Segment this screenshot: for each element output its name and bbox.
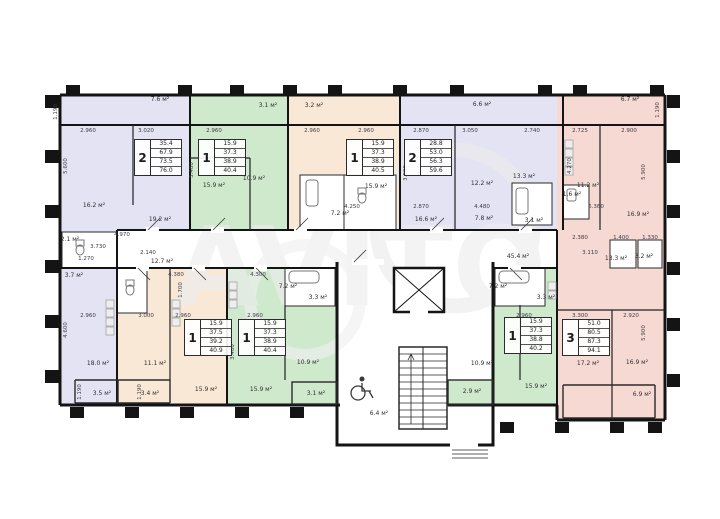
- dimension-label: 2.140: [140, 250, 156, 256]
- area-label: 3.1 м²: [307, 391, 325, 397]
- apartment-area-value: 38.9: [255, 338, 285, 347]
- area-label: 7.2 м²: [331, 211, 349, 217]
- apartment-number: 1: [199, 140, 215, 175]
- apartment-area-value: 67.9: [151, 149, 181, 158]
- area-label: 11.2 м²: [577, 183, 599, 189]
- apartment-area-value: 38.8: [521, 336, 551, 345]
- apartment-area-value: 51.0: [579, 320, 609, 329]
- area-label: 3.2 м²: [635, 254, 653, 260]
- dimension-label: 4.250: [344, 204, 360, 210]
- dimension-label: 6.360: [588, 204, 604, 210]
- dimension-label: 1.190: [77, 384, 83, 400]
- dimension-label: 1.400: [613, 235, 629, 241]
- apartment-area-value: 59.6: [421, 167, 451, 175]
- area-label: 16.2 м²: [83, 203, 105, 209]
- dimension-label: 1.190: [137, 384, 143, 400]
- apartment-area-value: 15.9: [215, 140, 245, 149]
- area-label: 18.0 м²: [87, 361, 109, 367]
- dimension-label: 1.270: [78, 256, 94, 262]
- area-label: 13.3 м²: [605, 256, 627, 262]
- area-label: 7.2 м²: [279, 284, 297, 290]
- apartment-number: 1: [185, 320, 201, 355]
- apartment-area-value: 15.9: [201, 320, 231, 329]
- area-label: 17.2 м²: [577, 361, 599, 367]
- dimension-label: 2.960: [80, 313, 96, 319]
- apartment-area-value: 28.8: [421, 140, 451, 149]
- apartment-number: 1: [347, 140, 363, 175]
- dimension-label: 3.050: [462, 128, 478, 134]
- dimension-label: 1.190: [53, 104, 59, 120]
- apartment-table: 228.853.056.359.6: [404, 139, 452, 176]
- dimension-label: 2.740: [524, 128, 540, 134]
- area-label: 12.2 м²: [471, 181, 493, 187]
- area-label: 3.3 м²: [537, 295, 555, 301]
- dimension-label: 4.270: [567, 158, 573, 174]
- dimension-label: 4.600: [63, 322, 69, 338]
- dimension-label: 2.960: [206, 128, 222, 134]
- area-label: 7.2 м²: [489, 284, 507, 290]
- dimension-label: 5.900: [641, 325, 647, 341]
- apartment-table: 115.937.539.240.9: [184, 319, 232, 356]
- apartment-table: 235.467.973.576.0: [134, 139, 182, 176]
- dimension-label: 2.380: [572, 235, 588, 241]
- wheelchair-icon: [351, 377, 373, 401]
- dimension-label: 2.960: [304, 128, 320, 134]
- apartment-area-value: 73.5: [151, 158, 181, 167]
- area-label: 1.6 м²: [563, 192, 581, 198]
- area-label: 15.9 м²: [365, 184, 387, 190]
- area-label: 15.9 м²: [203, 183, 225, 189]
- dimension-label: 3.730: [90, 244, 106, 250]
- apartment-area-value: 53.0: [421, 149, 451, 158]
- apartment-table: 115.937.338.940.5: [346, 139, 394, 176]
- dimension-label: 2.920: [623, 313, 639, 319]
- apartment-number: 2: [405, 140, 421, 175]
- dimension-label: 1.700: [178, 282, 184, 298]
- area-label: 10.9 м²: [297, 360, 319, 366]
- apartment-area-value: 39.2: [201, 338, 231, 347]
- apartment-area-value: 40.5: [363, 167, 393, 175]
- area-label: 2.9 м²: [463, 389, 481, 395]
- area-label: 6.4 м²: [370, 411, 388, 417]
- area-label: 45.4 м²: [507, 254, 529, 260]
- dimension-label: 2.870: [413, 128, 429, 134]
- apartment-area-value: 40.9: [201, 347, 231, 355]
- dimension-label: 2.870: [413, 204, 429, 210]
- apartment-area-value: 38.9: [363, 158, 393, 167]
- apartment-area-value: 38.9: [215, 158, 245, 167]
- apartment-number: 2: [135, 140, 151, 175]
- dimension-label: 5.480: [189, 162, 195, 178]
- elevator-shaft: [394, 268, 444, 314]
- area-label: 11.1 м²: [144, 361, 166, 367]
- apartment-table: 115.937.338.840.2: [504, 317, 552, 354]
- apartment-area-value: 15.9: [363, 140, 393, 149]
- dimension-label: 3.000: [138, 313, 154, 319]
- dimension-label: 3.020: [138, 128, 154, 134]
- area-label: 6.9 м²: [633, 392, 651, 398]
- apartment-area-value: 37.3: [363, 149, 393, 158]
- area-label: 19.2 м²: [149, 217, 171, 223]
- floorplan-canvas: AVITO: [0, 0, 720, 519]
- apartment-area-value: 56.3: [421, 158, 451, 167]
- area-label: 10.9 м²: [471, 361, 493, 367]
- dimension-label: 3.110: [582, 250, 598, 256]
- area-label: 15.9 м²: [250, 387, 272, 393]
- area-label: 3.1 м²: [259, 103, 277, 109]
- area-label: 15.9 м²: [195, 387, 217, 393]
- area-label: 16.6 м²: [415, 217, 437, 223]
- area-label: 2.1 м²: [61, 237, 79, 243]
- apartment-area-value: 37.5: [201, 329, 231, 338]
- area-label: 3.5 м²: [93, 391, 111, 397]
- apartment-table: 351.080.587.394.1: [562, 319, 610, 356]
- apartment-area-value: 37.3: [521, 327, 551, 336]
- area-label: 6.6 м²: [473, 102, 491, 108]
- dimension-label: 5.900: [641, 164, 647, 180]
- apartment-area-value: 37.3: [215, 149, 245, 158]
- area-label: 12.7 м²: [151, 259, 173, 265]
- area-label: 7.6 м²: [151, 97, 169, 103]
- apartment-area-value: 87.3: [579, 338, 609, 347]
- area-label: 16.9 м²: [626, 360, 648, 366]
- dimension-label: 4.970: [114, 232, 130, 238]
- apartment-table: 115.937.338.940.4: [238, 319, 286, 356]
- apartment-area-value: 94.1: [579, 347, 609, 355]
- dimension-label: 1.330: [642, 235, 658, 241]
- dimension-label: 4.300: [250, 272, 266, 278]
- apartment-area-value: 40.2: [521, 345, 551, 353]
- dimension-label: 4.380: [168, 272, 184, 278]
- area-label: 7.8 м²: [475, 216, 493, 222]
- area-label: 3.1 м²: [525, 218, 543, 224]
- area-label: 15.9 м²: [525, 384, 547, 390]
- apartment-area-value: 15.9: [521, 318, 551, 327]
- apartment-area-value: 15.9: [255, 320, 285, 329]
- apartment-number: 1: [505, 318, 521, 353]
- area-label: 10.9 м²: [243, 176, 265, 182]
- dimension-label: 2.960: [358, 128, 374, 134]
- area-label: 3.2 м²: [305, 103, 323, 109]
- area-label: 3.3 м²: [309, 295, 327, 301]
- area-label: 16.9 м²: [627, 212, 649, 218]
- apartment-area-value: 80.5: [579, 329, 609, 338]
- dimension-label: 2.900: [621, 128, 637, 134]
- dimension-label: 4.480: [474, 204, 490, 210]
- apartment-area-value: 40.4: [255, 347, 285, 355]
- apartment-area-value: 35.4: [151, 140, 181, 149]
- apartment-number: 3: [563, 320, 579, 355]
- apartment-number: 1: [239, 320, 255, 355]
- dimension-label: 2.960: [80, 128, 96, 134]
- apartment-table: 115.937.338.940.4: [198, 139, 246, 176]
- dimension-label: 5.600: [63, 158, 69, 174]
- area-label: 3.4 м²: [141, 391, 159, 397]
- dimension-label: 1.190: [655, 102, 661, 118]
- area-label: 6.7 м²: [621, 97, 639, 103]
- area-label: 3.7 м²: [65, 273, 83, 279]
- dimension-label: 2.725: [572, 128, 588, 134]
- apartment-area-value: 76.0: [151, 167, 181, 175]
- area-label: 13.3 м²: [513, 174, 535, 180]
- apartment-area-value: 37.3: [255, 329, 285, 338]
- apartment-area-value: 40.4: [215, 167, 245, 175]
